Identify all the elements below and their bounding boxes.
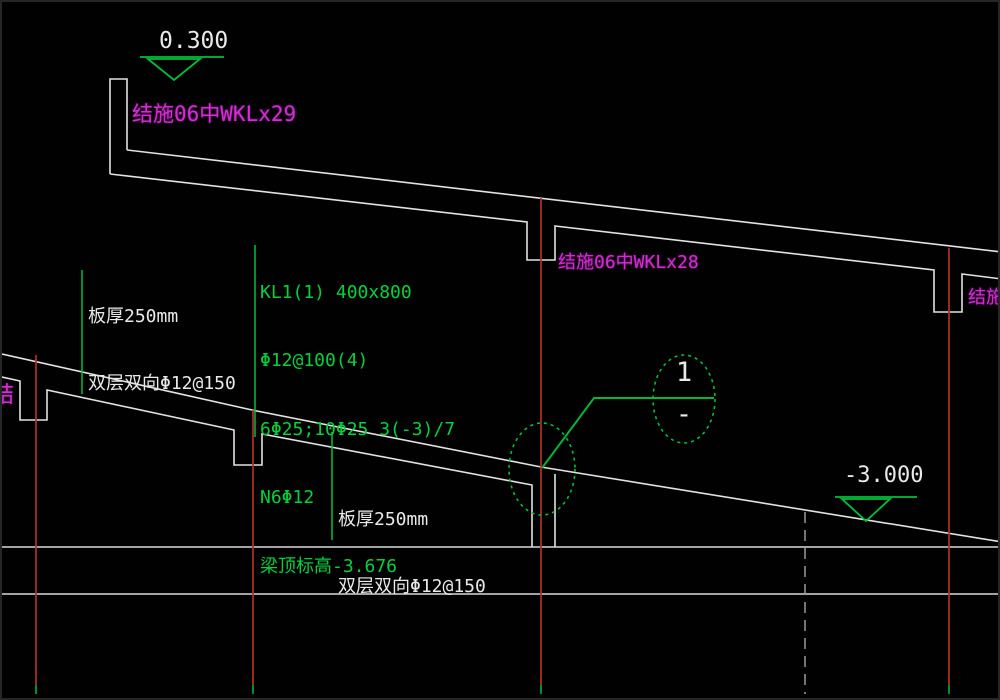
upper-ramp-upstand [110, 79, 127, 174]
upper-ramp-top-line [127, 150, 1000, 252]
beam-note-line-3: 6Φ25;10Φ25 3(-3)/7 [260, 420, 455, 449]
slab-note-lower: 板厚250mm 双层双向Φ12@150 [338, 470, 486, 645]
elevation-symbol-upper [140, 57, 224, 80]
cad-drawing-canvas[interactable]: 0.300 -3.000 结施06中WKLx29 结施06中WKLx28 结施0… [0, 0, 1000, 700]
beam-ref-left-clipped: 结 [0, 384, 14, 408]
elevation-value-lower: -3.000 [844, 464, 923, 488]
beam-ref-right-clipped: 结施0 [968, 288, 1000, 308]
beam-ref-middle: 结施06中WKLx28 [558, 253, 699, 273]
beam-note-line-2: Φ12@100(4) [260, 351, 455, 380]
elevation-value-upper: 0.300 [159, 29, 228, 54]
slab-note-upper-line-2: 双层双向Φ12@150 [88, 374, 236, 402]
section-bubble-number: 1 [664, 358, 704, 388]
slab-note-lower-line-1: 板厚250mm [338, 510, 486, 538]
grid-line-green-tips [36, 685, 949, 694]
upper-ramp-bottom-line [110, 174, 1000, 312]
slab-note-upper: 板厚250mm 双层双向Φ12@150 [88, 267, 236, 442]
beam-ref-top: 结施06中WKLx29 [132, 103, 296, 126]
floor-lines [2, 547, 1000, 594]
slab-note-lower-line-2: 双层双向Φ12@150 [338, 577, 486, 605]
beam-note-line-1: KL1(1) 400x800 [260, 283, 455, 312]
section-bubble-sheet: - [664, 400, 704, 430]
slab-note-upper-line-1: 板厚250mm [88, 307, 236, 335]
